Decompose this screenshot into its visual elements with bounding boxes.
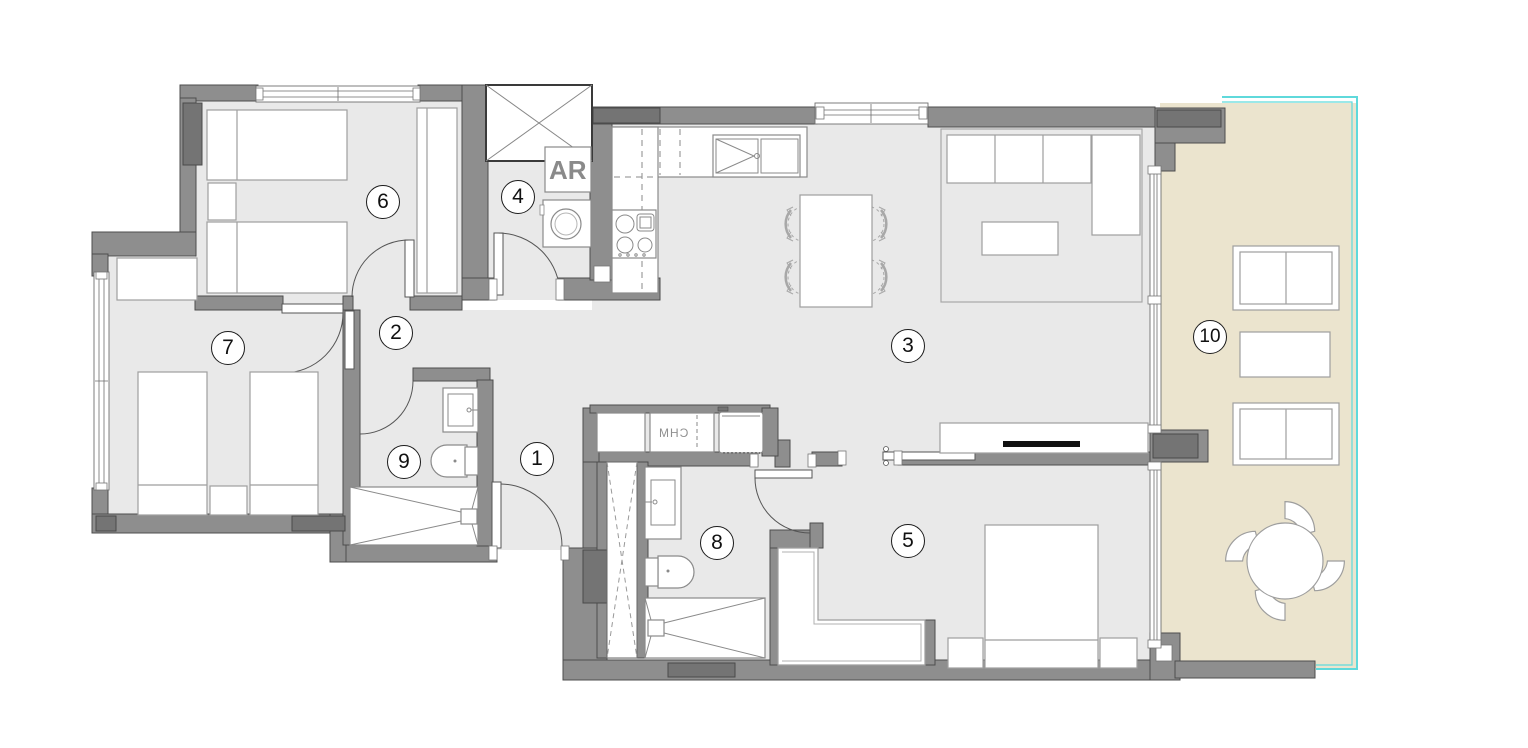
coffee-table xyxy=(982,222,1058,255)
window-bedroom-7 xyxy=(94,272,109,490)
shower xyxy=(645,598,765,658)
column-accent xyxy=(1153,434,1198,458)
glass-door-bedroom5-terrace xyxy=(1148,462,1161,648)
column-accent xyxy=(292,516,345,531)
shower xyxy=(350,487,478,545)
dining-table xyxy=(800,195,872,307)
sofa-back-cushions xyxy=(947,135,1091,183)
outdoor-table xyxy=(1240,332,1330,377)
water-heater xyxy=(718,407,763,453)
bed xyxy=(250,372,318,515)
outdoor-sofa xyxy=(1233,246,1339,310)
room-marker-7: 7 xyxy=(211,331,245,365)
column-accent xyxy=(668,663,735,677)
sofa-chaise xyxy=(1092,135,1140,235)
washbasin xyxy=(645,467,681,539)
cooktop xyxy=(612,210,656,258)
kitchen-sink xyxy=(713,135,800,177)
room-marker-1: 1 xyxy=(520,442,554,476)
toilet xyxy=(645,556,694,588)
floor-plan-drawing xyxy=(0,0,1528,748)
column-accent xyxy=(583,550,607,603)
nightstand xyxy=(210,486,247,515)
glass-door-living-terrace xyxy=(1148,166,1161,433)
washbasin xyxy=(443,388,478,432)
lintel-accent xyxy=(593,108,660,123)
washing-machine xyxy=(540,200,591,247)
floor-plan: 1 2 3 4 5 6 7 8 9 10 AR CHM xyxy=(0,0,1528,748)
window-living-3 xyxy=(815,103,928,124)
room-marker-9: 9 xyxy=(387,445,421,479)
nightstand xyxy=(208,183,236,220)
room-marker-3: 3 xyxy=(891,329,925,363)
bed xyxy=(138,372,207,515)
column-accent xyxy=(183,103,202,165)
wardrobe-rail xyxy=(1003,441,1080,447)
vent-shaft xyxy=(607,462,637,658)
wardrobe xyxy=(940,423,1148,453)
room-marker-2: 2 xyxy=(379,316,413,350)
round-table xyxy=(1247,523,1323,599)
room-marker-8: 8 xyxy=(700,526,734,560)
room-marker-10: 10 xyxy=(1193,320,1227,354)
column-accent xyxy=(1157,110,1221,127)
outdoor-sofa xyxy=(1233,403,1339,465)
bed xyxy=(207,222,347,293)
bed xyxy=(985,525,1098,668)
window-bedroom-6 xyxy=(256,86,420,102)
closet xyxy=(597,413,645,452)
toilet xyxy=(431,445,478,477)
room-marker-5: 5 xyxy=(891,524,925,558)
dining-set xyxy=(786,195,887,307)
bed xyxy=(207,110,347,180)
column-accent xyxy=(96,516,116,531)
nightstand xyxy=(1100,638,1137,668)
wardrobe xyxy=(417,108,457,293)
closet xyxy=(117,258,197,300)
room-marker-6: 6 xyxy=(366,185,400,219)
room-marker-4: 4 xyxy=(501,180,535,214)
laundry-label: AR xyxy=(549,155,587,186)
heater-label: CHM xyxy=(658,426,688,440)
nightstand xyxy=(948,638,983,668)
